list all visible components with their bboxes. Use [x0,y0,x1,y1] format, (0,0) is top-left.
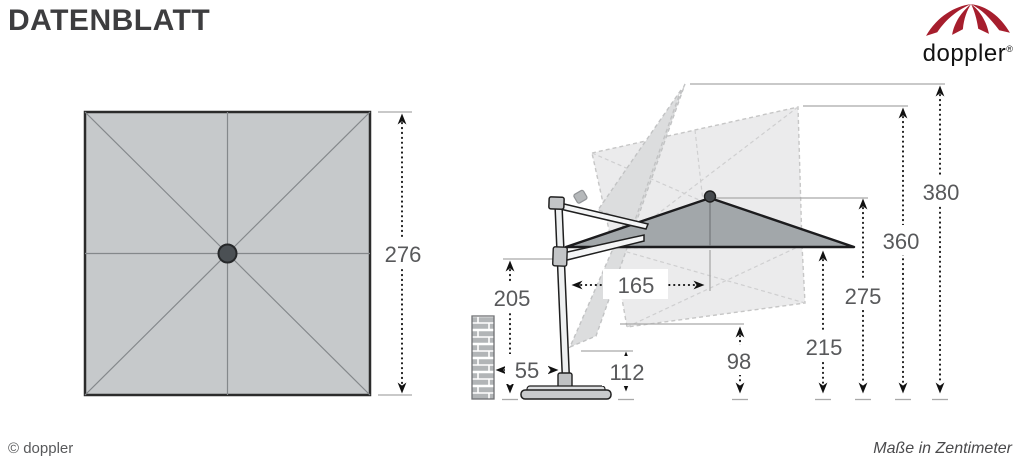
top-view-diagram: 276 [85,112,426,395]
dim-label-112: 112 [609,360,644,385]
dim-label-98: 98 [727,349,751,374]
mast-joint [553,247,568,266]
canopy-finial [705,191,716,202]
dim-360: 360 [876,108,925,394]
dim-label-360: 360 [883,229,920,254]
wall [472,316,494,399]
dim-label-276: 276 [385,242,422,267]
mast [555,205,570,392]
canopy-center-hub [219,245,237,263]
dim-276: 276 [378,112,426,395]
dim-label-205: 205 [494,286,531,311]
dim-98: 98 [717,327,760,394]
side-view-diagram: 380 360 275 215 [472,84,965,400]
dim-55: 55 [496,354,559,384]
dim-label-55: 55 [515,358,539,383]
dim-112: 112 [602,352,651,392]
dim-label-380: 380 [923,180,960,205]
mast-cap [549,197,564,210]
units-note: Maße in Zentimeter [873,440,1012,458]
ghost-mast-cap [573,190,588,204]
copyright-note: © doppler [8,440,73,457]
dimension-drawing: 276 [0,0,1020,462]
base-cross-front [521,390,611,399]
datasheet-page: DATENBLATT doppler® [0,0,1020,462]
dim-215: 215 [799,251,848,394]
dim-label-165: 165 [618,273,655,298]
dim-label-215: 215 [806,335,843,360]
dim-label-275: 275 [845,284,882,309]
